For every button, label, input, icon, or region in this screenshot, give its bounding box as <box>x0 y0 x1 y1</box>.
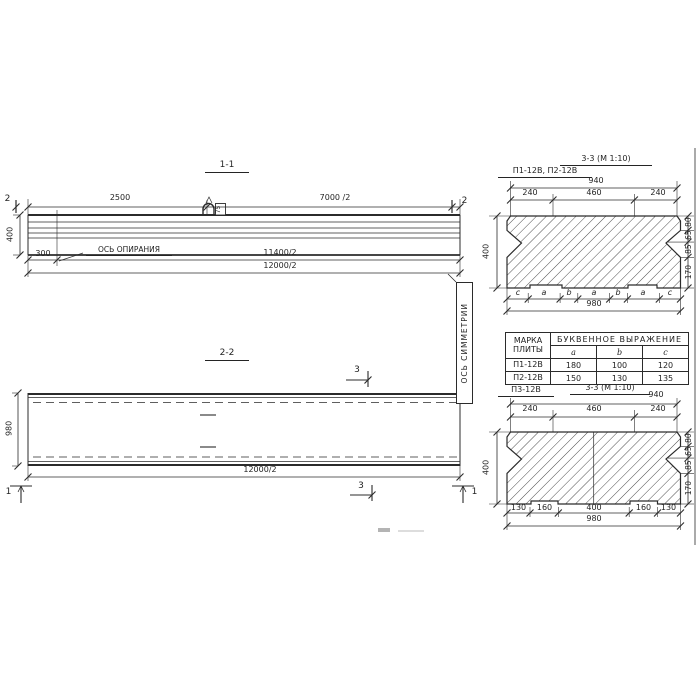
dim-980-bottom: 980 <box>576 515 612 524</box>
dim-460-top: 460 <box>572 189 616 198</box>
symmetry-axis-label: ОСЬ СИММЕТРИИ <box>460 303 469 384</box>
section-2-2-title: 2-2 <box>205 349 249 361</box>
section-mark-1-right: 1 <box>468 488 481 498</box>
letter-dim-a2: a <box>584 289 604 298</box>
cross-section-bottom-body <box>507 432 681 504</box>
dim-130-2: 130 <box>656 504 681 513</box>
dim-85-top: 85 <box>685 239 693 259</box>
section-mark-2-right: 2 <box>458 197 471 207</box>
letter-dim-b1: b <box>559 289 579 298</box>
table-col-a: a <box>551 346 597 359</box>
section-3-3-top-title: 3-3 (М 1:10) <box>560 155 652 166</box>
table-col-b: b <box>597 346 643 359</box>
table-cell-c-1: 120 <box>643 359 689 372</box>
dim-12000-half-elevation: 12000/2 <box>248 262 312 271</box>
scan-artifact <box>378 528 390 532</box>
letter-dim-b2: b <box>608 289 628 298</box>
lifting-loop-label: 75 <box>215 204 226 215</box>
dim-240-right-bottom: 240 <box>640 405 676 414</box>
table-cell-b-1: 100 <box>597 359 643 372</box>
table-cell-mark-2: П2-12В <box>506 372 551 385</box>
plate-mark-bottom: П3-12В <box>498 386 554 397</box>
slab-elevation <box>13 197 460 277</box>
dim-400-mid: 400 <box>581 504 607 513</box>
letter-dimension-table: МАРКА ПЛИТЫ БУКВЕННОЕ ВЫРАЖЕНИЕ a b c П1… <box>505 332 689 385</box>
dim-300: 300 <box>28 250 58 259</box>
table-col-c: c <box>643 346 689 359</box>
dim-width-980-plan: 980 <box>6 413 15 443</box>
dim-170-top: 170 <box>685 262 693 282</box>
dim-170-bottom: 170 <box>685 478 693 498</box>
dim-12000-half-plan: 12000/2 <box>228 466 292 475</box>
dim-11400-half: 11400/2 <box>250 249 310 258</box>
dim-460-bottom: 460 <box>572 405 616 414</box>
dim-240-right-top: 240 <box>640 189 676 198</box>
drawing-sheet: 1-1 2500 7000 /2 2 2 400 75 300 ОСЬ ОПИР… <box>0 0 700 700</box>
dim-940-bottom: 940 <box>638 391 674 400</box>
section-mark-1-left: 1 <box>2 488 15 498</box>
dim-400-top: 400 <box>483 236 492 266</box>
section-1-1-title: 1-1 <box>205 161 249 173</box>
dim-130-1: 130 <box>506 504 531 513</box>
scan-artifact <box>398 530 424 532</box>
dim-240-left-top: 240 <box>512 189 548 198</box>
letter-dim-c1: c <box>508 289 528 298</box>
letter-dim-c2: c <box>660 289 680 298</box>
bearing-axis-label: ОСЬ ОПИРАНИЯ <box>86 246 172 256</box>
dim-160-2: 160 <box>631 504 656 513</box>
dim-400-bottom: 400 <box>483 452 492 482</box>
dim-160-1: 160 <box>532 504 557 513</box>
table-header-expression: БУКВЕННОЕ ВЫРАЖЕНИЕ <box>551 333 689 346</box>
dim-940-top: 940 <box>578 177 614 186</box>
dim-980-top: 980 <box>576 300 612 309</box>
letter-dim-a1: a <box>534 289 554 298</box>
dim-height-400: 400 <box>7 219 16 249</box>
section-mark-2-left: 2 <box>1 195 14 205</box>
table-row: П1-12В 180 100 120 <box>506 359 689 372</box>
section-mark-3-bottom: 3 <box>352 482 370 492</box>
table-header-mark: МАРКА ПЛИТЫ <box>506 333 551 359</box>
table-cell-c-2: 135 <box>643 372 689 385</box>
symmetry-axis-flag: ОСЬ СИММЕТРИИ <box>456 282 473 404</box>
cross-section-top-body <box>507 216 681 288</box>
table-cell-a-1: 180 <box>551 359 597 372</box>
dim-240-left-bottom: 240 <box>512 405 548 414</box>
dim-7000-half: 7000 /2 <box>300 194 370 203</box>
letter-dim-a3: a <box>633 289 653 298</box>
section-mark-3-top: 3 <box>348 366 366 376</box>
table-cell-mark-1: П1-12В <box>506 359 551 372</box>
dim-85-bottom: 85 <box>685 455 693 475</box>
dim-2500: 2500 <box>90 194 150 203</box>
